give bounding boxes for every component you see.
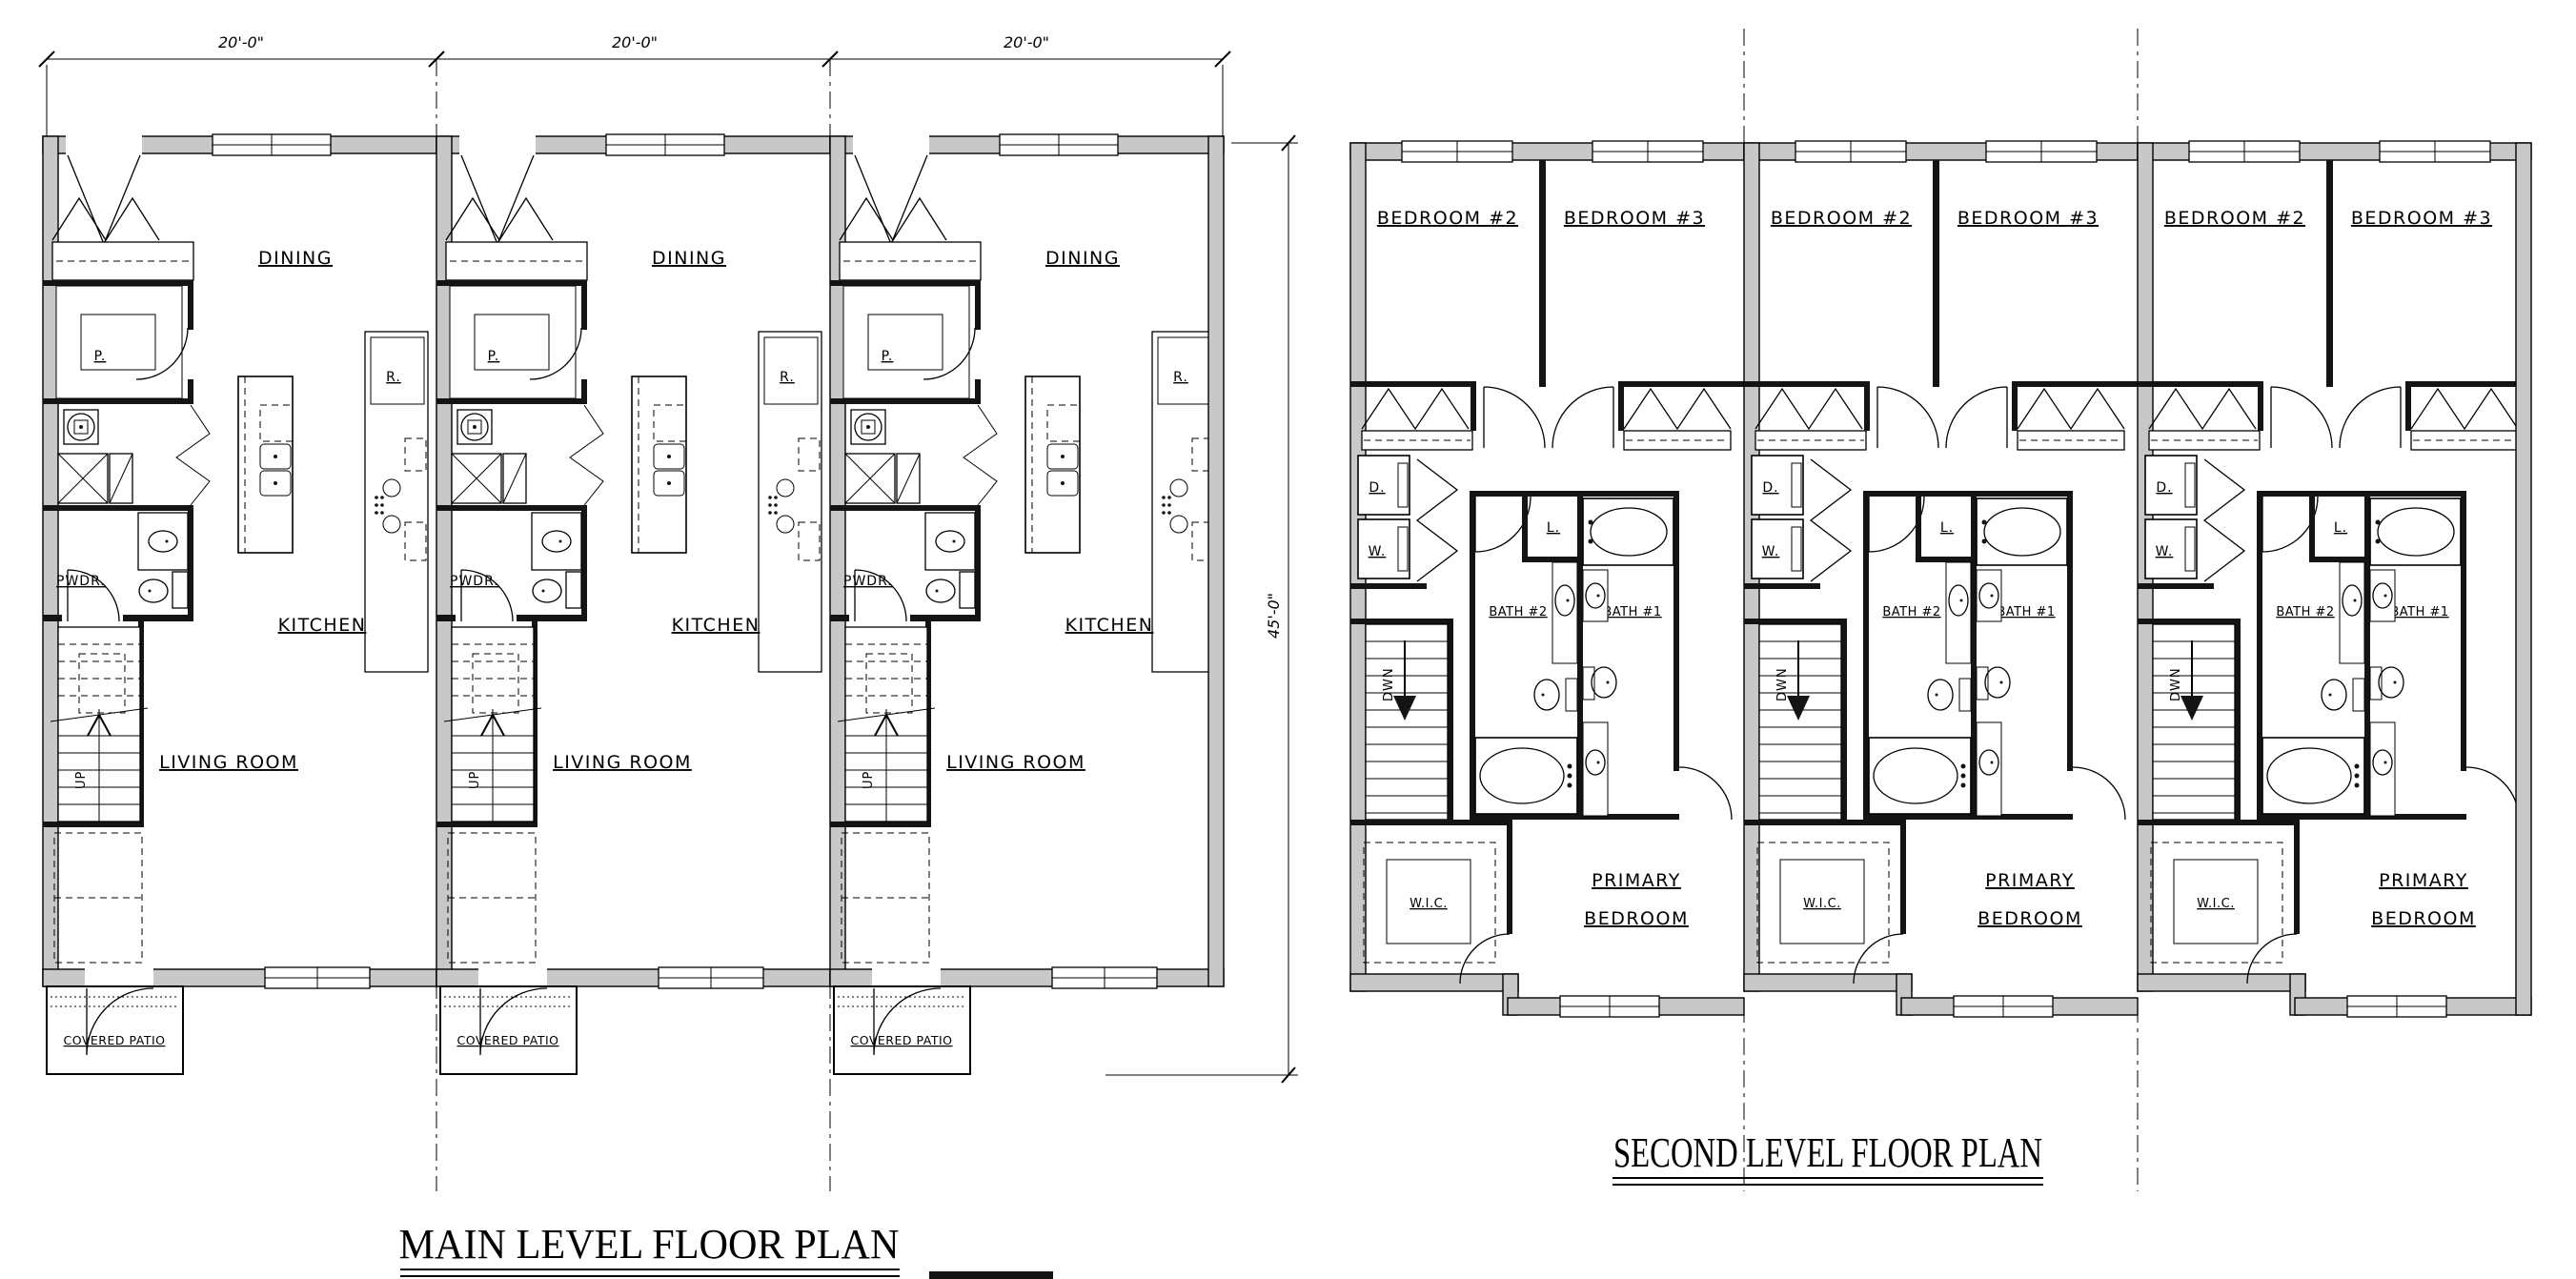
patio-label: COVERED PATIO	[64, 1033, 166, 1047]
bedroom2-label: BEDROOM #2	[1377, 208, 1518, 229]
vanity	[1583, 570, 1608, 621]
laundry-bifold-doors	[1417, 459, 1457, 581]
wall-seg	[1470, 491, 1679, 497]
toilet-bowl	[1534, 680, 1559, 710]
second-level-plan: BEDROOM #2 BEDROOM #3	[1350, 29, 2531, 1191]
bath1-label: BATH #1	[1603, 605, 1661, 619]
sink-drain-2	[1597, 761, 1600, 764]
bedroom2-door-swing	[1484, 387, 1545, 448]
wall-seg	[123, 615, 193, 621]
second-unit-2	[1744, 141, 2138, 1017]
entry-closet	[52, 198, 193, 280]
second-title: SECOND LEVEL FLOOR PLAN	[1613, 1129, 2042, 1176]
vanity	[1552, 562, 1577, 663]
extension-lines	[47, 65, 1223, 376]
toilet-dot	[149, 590, 152, 593]
open-wall-symbol	[176, 405, 210, 505]
rear-window	[265, 967, 370, 988]
range-knob	[380, 511, 384, 515]
main-right-exterior-wall	[1208, 136, 1224, 986]
bath1: BATH #1	[1583, 498, 1673, 816]
bedroom-divider-wall	[1539, 160, 1546, 387]
toilet-tank	[1566, 679, 1577, 711]
kitchen-counter: R.	[365, 332, 428, 672]
wic-wall	[1350, 820, 1512, 825]
dryer-label: D.	[1369, 480, 1385, 496]
wall-seg	[1470, 814, 1679, 820]
under-stair-storage	[54, 833, 142, 963]
sink-drain-2	[274, 481, 277, 485]
main-top-dimension: 20'-0" 20'-0" 20'-0"	[39, 33, 1230, 376]
range-knob	[375, 496, 378, 499]
front-window	[213, 134, 331, 155]
bedroom3-label: BEDROOM #3	[1564, 208, 1705, 229]
dim-label-unit3: 20'-0"	[1004, 33, 1049, 51]
linen-wall	[1522, 557, 1583, 562]
wall-seg	[188, 505, 193, 620]
bedroom3-closet	[1618, 381, 1744, 450]
wic-wall	[1507, 825, 1512, 934]
second-title-underline	[1613, 1178, 2043, 1185]
wall-seg	[1673, 497, 1679, 771]
main-unit: DINING	[43, 134, 436, 1074]
main-level-plan: 20'-0" 20'-0" 20'-0" 45'-0" DINING	[39, 33, 1298, 1279]
powder-label: PWDR.	[56, 574, 106, 589]
main-unit-2	[436, 134, 830, 1074]
bathtub	[1475, 738, 1577, 814]
sink-drain	[1567, 599, 1570, 602]
wall-seg	[1470, 497, 1475, 820]
wall-seg	[188, 280, 193, 330]
stairs-down: DWN	[1350, 619, 1453, 822]
wall-seg	[43, 280, 193, 286]
closet-jamb	[1471, 381, 1476, 431]
closet-wall	[1620, 381, 1744, 387]
laundry-closet: D. W.	[1350, 456, 1457, 589]
kitchen-label: KITCHEN	[278, 615, 367, 636]
primary-bath-door-swing	[1679, 767, 1732, 820]
dim-label-height: 45'-0"	[1265, 593, 1283, 639]
linen-label: L.	[1547, 520, 1560, 536]
dim-label-unit2: 20'-0"	[612, 33, 658, 51]
linen-closet: L.	[1522, 497, 1583, 562]
wall-seg	[43, 615, 62, 621]
main-title-block: MAIN LEVEL FLOOR PLAN	[399, 1221, 1054, 1279]
tub-faucet	[1568, 774, 1572, 779]
toilet-dot	[1542, 694, 1545, 697]
floor-plan-sheet: 20'-0" 20'-0" 20'-0" 45'-0" DINING	[0, 0, 2576, 1279]
bedroom2-closet	[1350, 381, 1476, 450]
stair-well	[1366, 624, 1448, 820]
wall-seg	[188, 379, 193, 404]
main-unit-3	[830, 134, 1224, 1074]
primary-window	[1560, 996, 1659, 1017]
bath2-label: BATH #2	[1489, 605, 1547, 619]
bedroom2-window	[1402, 141, 1512, 162]
wall-seg	[43, 505, 193, 511]
stairs-up: UP	[51, 627, 148, 822]
toilet-bowl	[139, 579, 168, 602]
mechanical-closet	[58, 454, 132, 503]
kitchen-island	[238, 376, 293, 553]
bath2: BATH #2	[1475, 562, 1577, 814]
wic-label: W.I.C.	[1410, 897, 1448, 911]
pantry-label: P.	[94, 349, 107, 364]
bifold-doors	[1624, 389, 1731, 429]
dining-label: DINING	[258, 248, 333, 269]
wall-seg	[43, 398, 193, 404]
main-title-underline	[400, 1269, 900, 1276]
range-knob	[375, 511, 378, 515]
second-right-exterior-wall	[2516, 143, 2531, 1015]
living-room-label: LIVING ROOM	[159, 752, 298, 773]
wall-seg	[43, 822, 144, 827]
tub-faucet	[1589, 520, 1593, 525]
water-heater	[64, 410, 98, 444]
primary-bedroom-label-line1: PRIMARY	[1592, 870, 1681, 891]
bifold-doors	[1362, 389, 1469, 429]
washer-label: W.	[1369, 544, 1387, 559]
stair-side-wall	[1448, 624, 1453, 822]
primary-bedroom-label-line2: BEDROOM	[1584, 908, 1689, 929]
linen-wall	[1522, 497, 1528, 559]
pantry-room	[56, 286, 182, 398]
covered-patio: COVERED PATIO	[47, 986, 183, 1074]
stairs-up-label: UP	[74, 771, 89, 789]
tub-faucet	[1568, 783, 1572, 788]
bedroom3-window	[1592, 141, 1703, 162]
walk-in-closet: W.I.C.	[1350, 820, 1512, 984]
main-title: MAIN LEVEL FLOOR PLAN	[399, 1221, 900, 1268]
entry-opening	[66, 134, 142, 155]
patio-edge-lines	[51, 997, 179, 1006]
scale-bar	[929, 1271, 1053, 1279]
powder-room: PWDR.	[56, 513, 188, 621]
bedroom3-door-swing	[1552, 387, 1613, 448]
second-unit-3	[2138, 141, 2531, 1017]
patio-door-opening	[85, 967, 153, 988]
toilet-bowl	[1592, 667, 1616, 698]
range-knob	[380, 503, 384, 507]
range-knob	[375, 503, 378, 507]
vanity	[138, 513, 188, 570]
toilet-tank	[172, 572, 188, 608]
patio-outline	[47, 986, 183, 1074]
dim-label-unit1: 20'-0"	[218, 33, 264, 51]
second-title-block: SECOND LEVEL FLOOR PLAN	[1613, 1129, 2043, 1185]
sink-drain	[166, 540, 169, 543]
water-heater-dot	[79, 425, 83, 429]
bottom-wall-left	[1350, 974, 1518, 991]
wall-seg	[1577, 497, 1583, 820]
stair-top-wall	[1350, 619, 1453, 624]
sink-drain	[1597, 595, 1600, 598]
tub-faucet	[1568, 764, 1572, 769]
sink-drain-1	[274, 455, 277, 458]
closet-jamb	[1618, 381, 1624, 431]
stairs-down-label: DWN	[1382, 667, 1396, 701]
refrigerator-label: R.	[386, 370, 401, 385]
pantry: P.	[56, 286, 188, 398]
second-unit: BEDROOM #2 BEDROOM #3	[1350, 141, 1744, 1017]
range-knob	[380, 496, 384, 499]
toilet-tank	[1583, 667, 1594, 700]
laundry-wall	[1350, 583, 1427, 589]
tub-faucet	[1589, 539, 1593, 544]
toilet-dot	[1607, 681, 1610, 684]
closet-wall	[1350, 381, 1476, 387]
